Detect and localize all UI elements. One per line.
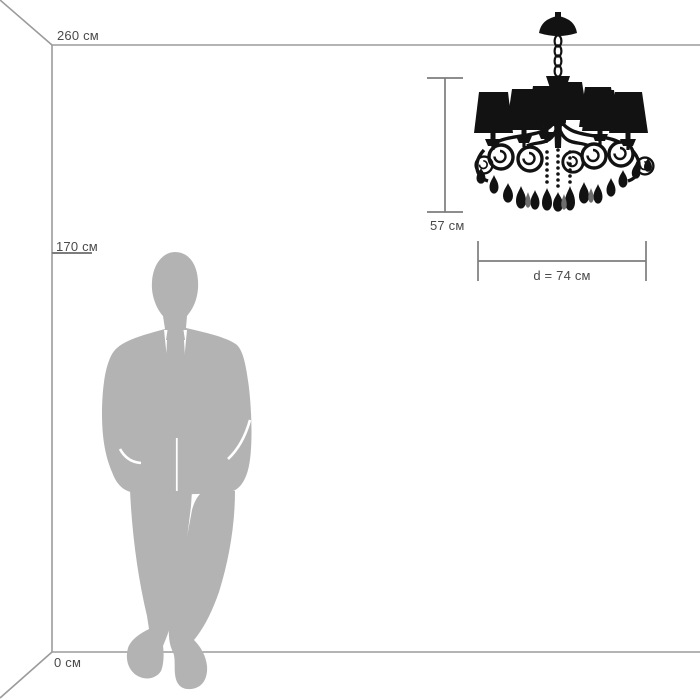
room-corner-top-diagonal <box>0 0 52 45</box>
product-height-label: 57 см <box>430 219 465 232</box>
product-size-diagram: 260 см 170 см 0 см 57 см d = 74 см <box>0 0 700 700</box>
person-height-label: 170 см <box>56 240 98 253</box>
product-diameter-label: d = 74 см <box>478 269 646 282</box>
ceiling-height-label: 260 см <box>57 29 99 42</box>
room-corner-bottom-diagonal <box>0 652 52 698</box>
person-silhouette <box>102 252 252 689</box>
height-dimension-line <box>427 78 463 212</box>
chandelier-silhouette <box>474 12 653 212</box>
floor-label: 0 см <box>54 656 81 669</box>
diagram-canvas <box>0 0 700 700</box>
